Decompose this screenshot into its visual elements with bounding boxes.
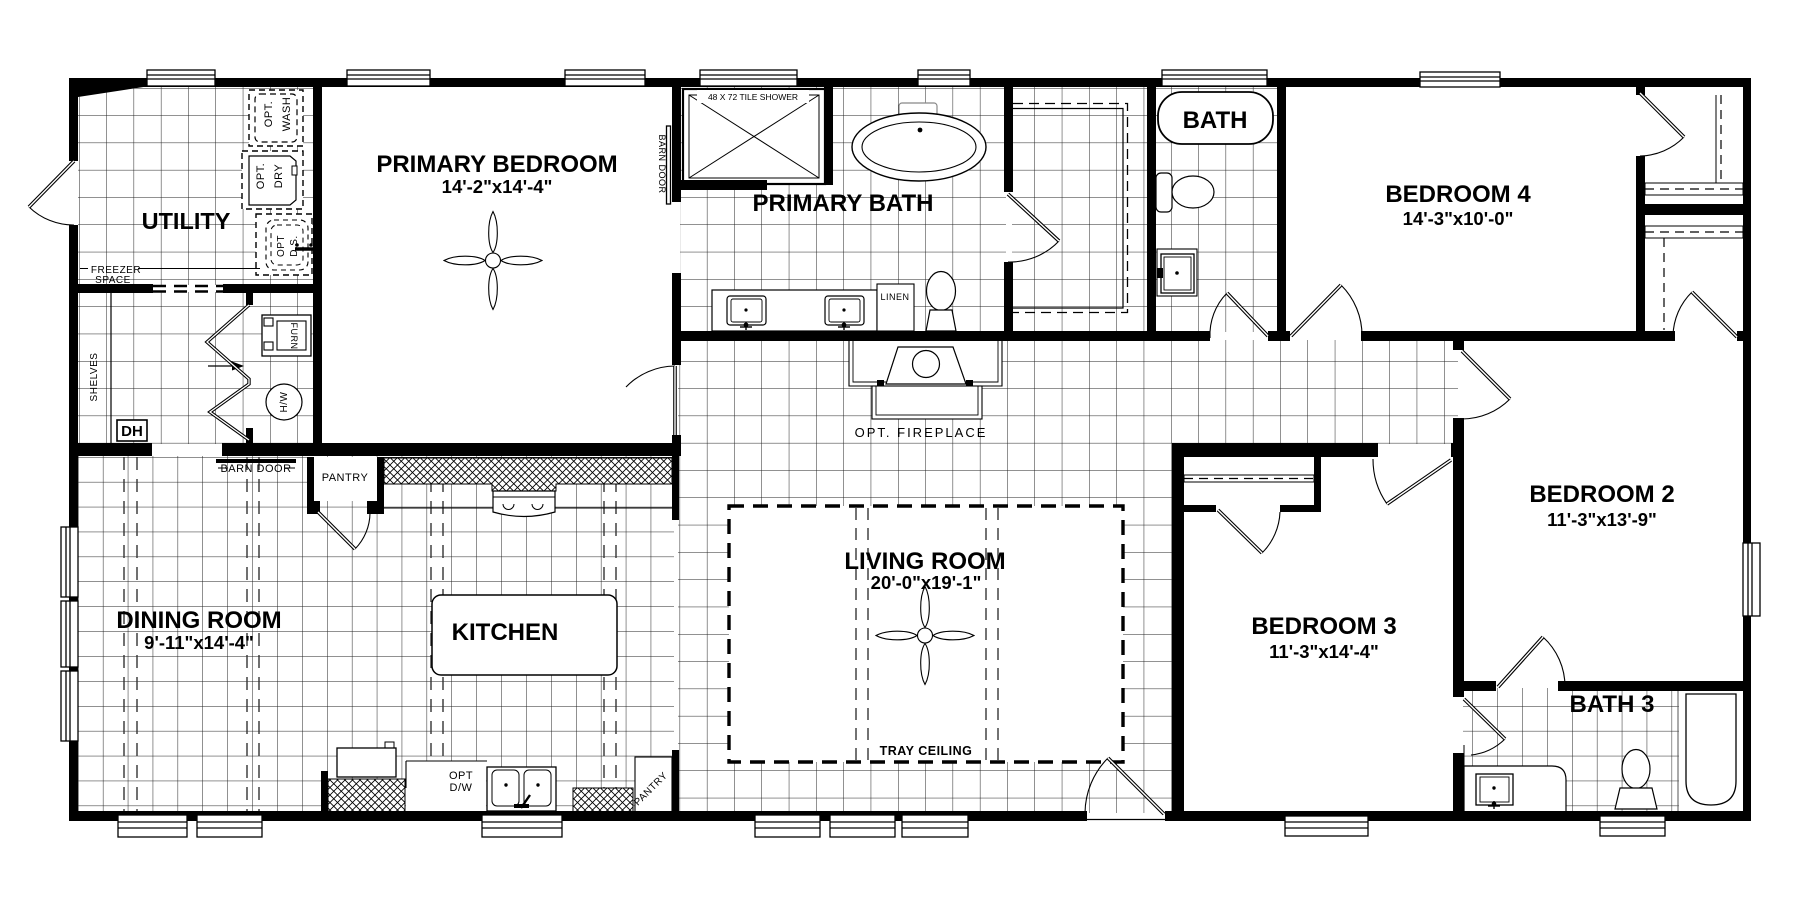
svg-text:H/W: H/W (279, 391, 290, 412)
svg-text:DRY: DRY (273, 164, 285, 189)
svg-text:D/W: D/W (450, 782, 473, 794)
svg-text:BARN DOOR: BARN DOOR (220, 463, 291, 475)
svg-text:14'-2"x14'-4": 14'-2"x14'-4" (442, 176, 553, 197)
svg-text:48 X 72 TILE SHOWER: 48 X 72 TILE SHOWER (708, 92, 798, 102)
svg-text:LIVING ROOM: LIVING ROOM (844, 548, 1005, 575)
svg-text:FURN: FURN (289, 323, 299, 350)
svg-text:PRIMARY BEDROOM: PRIMARY BEDROOM (376, 151, 617, 178)
svg-text:SHELVES: SHELVES (89, 353, 100, 402)
svg-text:14'-3"x10'-0": 14'-3"x10'-0" (1403, 208, 1514, 229)
svg-text:BEDROOM 4: BEDROOM 4 (1385, 181, 1531, 208)
svg-text:SPACE: SPACE (95, 275, 131, 286)
svg-text:BEDROOM 2: BEDROOM 2 (1529, 481, 1674, 508)
svg-text:OPT: OPT (276, 235, 287, 257)
svg-text:OPT. FIREPLACE: OPT. FIREPLACE (855, 425, 988, 440)
svg-text:PRIMARY BATH: PRIMARY BATH (753, 190, 934, 217)
svg-text:11'-3"x14'-4": 11'-3"x14'-4" (1269, 641, 1379, 662)
svg-text:11'-3"x13'-9": 11'-3"x13'-9" (1547, 509, 1657, 530)
svg-text:WASH: WASH (281, 97, 293, 132)
svg-text:OPT.: OPT. (255, 163, 267, 189)
svg-text:D.S.: D.S. (289, 235, 300, 256)
svg-text:BARN DOOR: BARN DOOR (657, 134, 667, 193)
svg-text:TRAY CEILING: TRAY CEILING (880, 744, 973, 758)
svg-text:OPT: OPT (449, 770, 473, 782)
svg-text:DINING ROOM: DINING ROOM (116, 607, 281, 634)
svg-text:KITCHEN: KITCHEN (452, 619, 559, 646)
svg-text:20'-0"x19'-1": 20'-0"x19'-1" (871, 572, 982, 593)
svg-text:BATH: BATH (1183, 107, 1248, 134)
svg-text:UTILITY: UTILITY (142, 208, 231, 234)
svg-text:BATH 3: BATH 3 (1570, 691, 1655, 718)
svg-text:DH: DH (121, 423, 143, 440)
svg-text:9'-11"x14'-4": 9'-11"x14'-4" (144, 632, 254, 653)
svg-text:BEDROOM 3: BEDROOM 3 (1251, 613, 1396, 640)
svg-text:PANTRY: PANTRY (322, 472, 369, 484)
svg-text:OPT.: OPT. (263, 101, 275, 127)
svg-text:LINEN: LINEN (880, 292, 909, 302)
